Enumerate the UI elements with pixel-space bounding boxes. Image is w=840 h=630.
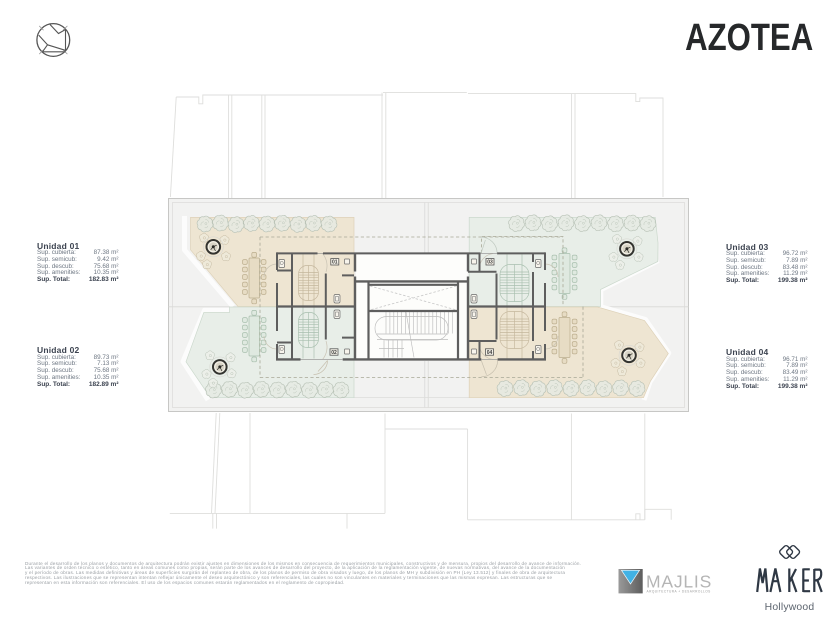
svg-text:01: 01: [332, 260, 338, 266]
svg-text:ARQUITECTURA + DESARROLLOS: ARQUITECTURA + DESARROLLOS: [647, 590, 711, 594]
svg-text:Hollywood: Hollywood: [765, 602, 815, 613]
svg-text:MAJLIS: MAJLIS: [646, 572, 712, 592]
svg-text:03: 03: [487, 260, 493, 266]
svg-text:02: 02: [331, 350, 337, 356]
svg-text:04: 04: [487, 350, 493, 356]
